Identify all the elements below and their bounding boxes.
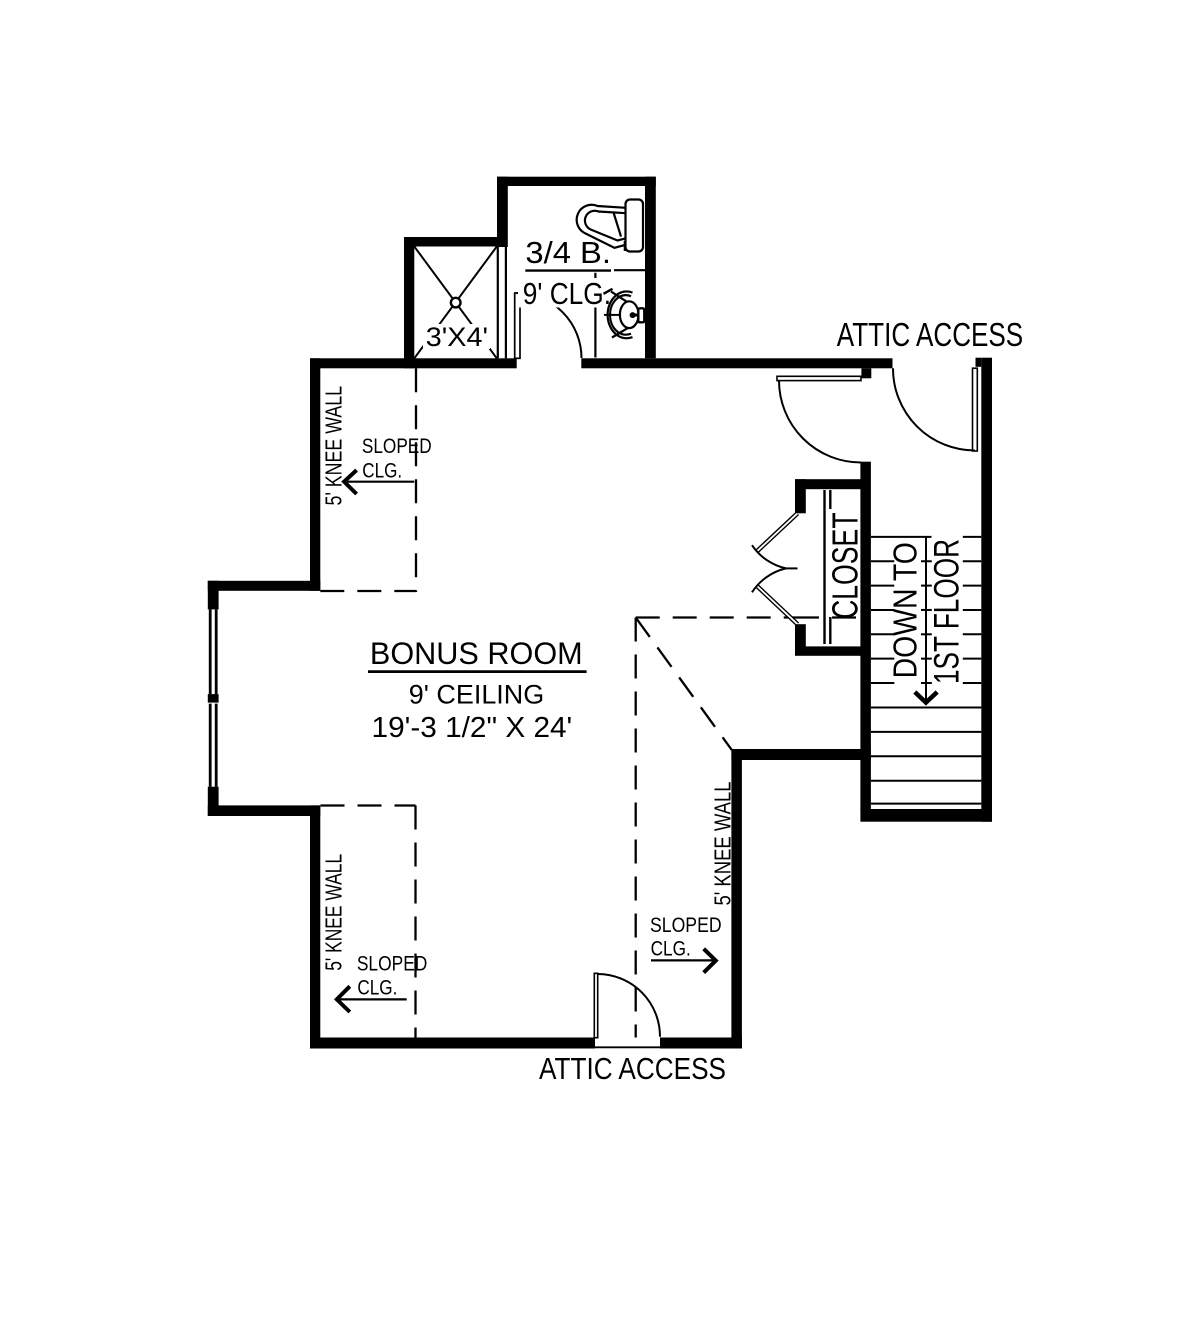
svg-text:DOWN TO: DOWN TO [887, 542, 924, 678]
svg-text:1ST FLOOR: 1ST FLOOR [926, 539, 966, 684]
svg-text:3'X4': 3'X4' [426, 322, 488, 352]
svg-text:SLOPED: SLOPED [357, 953, 428, 976]
svg-text:ATTIC ACCESS: ATTIC ACCESS [837, 316, 1023, 353]
svg-text:5' KNEE WALL: 5' KNEE WALL [709, 782, 735, 906]
svg-text:CLG.: CLG. [362, 460, 402, 483]
svg-text:3/4 B.: 3/4 B. [525, 236, 611, 270]
svg-text:SLOPED: SLOPED [362, 435, 432, 458]
svg-text:SLOPED: SLOPED [650, 914, 722, 937]
svg-text:CLG.: CLG. [651, 937, 691, 960]
svg-text:BONUS ROOM: BONUS ROOM [370, 635, 583, 671]
svg-text:9' CLG.: 9' CLG. [523, 276, 611, 311]
svg-text:ATTIC ACCESS: ATTIC ACCESS [539, 1051, 726, 1086]
svg-text:9' CEILING: 9' CEILING [409, 679, 544, 709]
svg-text:5' KNEE WALL: 5' KNEE WALL [321, 854, 347, 971]
svg-text:19'-3 1/2" X 24': 19'-3 1/2" X 24' [372, 712, 573, 744]
svg-text:CLG.: CLG. [357, 977, 397, 1000]
svg-text:5' KNEE WALL: 5' KNEE WALL [320, 386, 346, 506]
svg-text:CLOSET: CLOSET [824, 512, 865, 619]
